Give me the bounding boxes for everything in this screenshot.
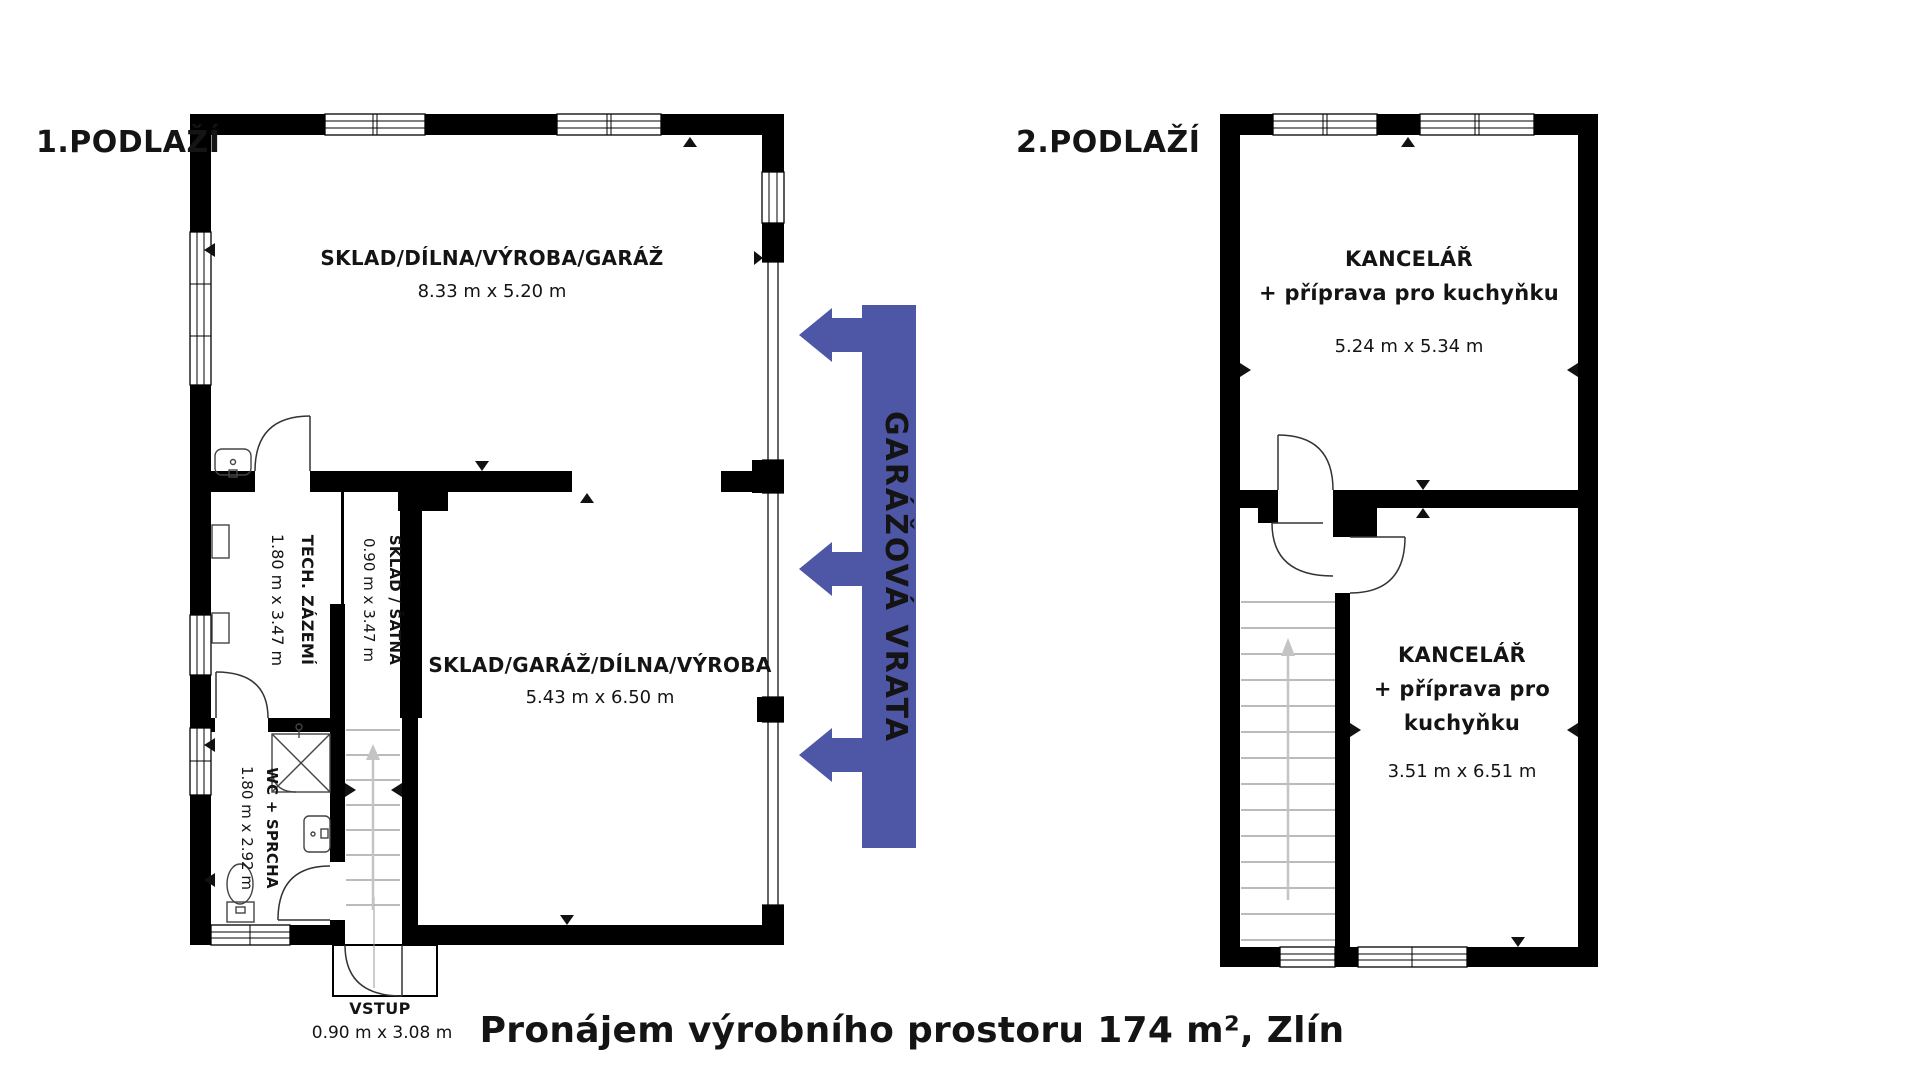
f1-window-left-3 bbox=[190, 728, 211, 795]
f1-window-top-2 bbox=[557, 114, 661, 135]
f2-left-wall bbox=[1220, 114, 1240, 967]
f2-door-office-bottom bbox=[1350, 537, 1405, 593]
f1-thin-partition bbox=[341, 492, 344, 604]
f1-window-left-1 bbox=[190, 232, 211, 385]
office-top-name: KANCELÁŘ bbox=[1345, 246, 1473, 271]
garage-door-opening-1 bbox=[762, 262, 784, 460]
f2-window-bottom-2 bbox=[1358, 947, 1467, 967]
floorplan-canvas: 1.PODLAŽÍ SKLAD/DÍLNA/VÝROBA/GARÁŽ 8.33 … bbox=[0, 0, 1920, 1080]
room-storage-top-dims: 8.33 m x 5.20 m bbox=[418, 281, 567, 302]
f2-right-wall bbox=[1578, 114, 1598, 967]
f2-wall-step bbox=[1258, 508, 1278, 523]
entrance-label: VSTUP bbox=[349, 999, 411, 1018]
room-satna-name: SKLAD / ŠATNA bbox=[386, 535, 405, 665]
f2-window-top-2 bbox=[1420, 114, 1534, 135]
room-storage-main-dims: 5.43 m x 6.50 m bbox=[526, 687, 675, 708]
tech-equipment-icon bbox=[212, 525, 229, 643]
f1-door-tech-wc bbox=[216, 672, 268, 718]
f2-window-top-1 bbox=[1273, 114, 1377, 135]
sink-wc-icon bbox=[304, 816, 330, 852]
room-wc-name: WC + SPRCHA bbox=[263, 767, 281, 888]
garage-door-banner: GARÁŽOVÁ VRATA bbox=[799, 305, 916, 848]
f2-door-opening-e bbox=[1278, 490, 1333, 508]
banner-label: GARÁŽOVÁ VRATA bbox=[878, 411, 914, 743]
room-wc-dims: 1.80 m x 2.92 m bbox=[238, 766, 256, 890]
f1-window-left-2 bbox=[190, 615, 211, 675]
banner-arrow-3 bbox=[799, 728, 864, 782]
f2-wall-block bbox=[1333, 508, 1377, 537]
f1-right-block2 bbox=[757, 697, 784, 722]
f1-stairs-right-wall bbox=[402, 718, 418, 925]
entrance-dims: 0.90 m x 3.08 m bbox=[312, 1023, 453, 1043]
banner-arrow-1 bbox=[799, 308, 864, 362]
office-bottom-dims: 3.51 m x 6.51 m bbox=[1388, 761, 1537, 782]
room-tech-dims: 1.80 m x 3.47 m bbox=[268, 534, 287, 666]
f2-wall-h bbox=[1335, 593, 1350, 947]
f1-right-t-block bbox=[752, 460, 784, 493]
office-top-line2: + příprava pro kuchyňku bbox=[1259, 281, 1559, 305]
f1-window-right bbox=[762, 172, 784, 223]
f1-staircase bbox=[346, 730, 400, 910]
room-storage-main-name: SKLAD/GARÁŽ/DÍLNA/VÝROBA bbox=[428, 653, 771, 677]
f1-entrance-door bbox=[333, 897, 437, 996]
room-storage-top-name: SKLAD/DÍLNA/VÝROBA/GARÁŽ bbox=[320, 246, 663, 270]
garage-door-opening-3 bbox=[762, 722, 784, 905]
f1-window-bottom bbox=[211, 925, 290, 945]
floorplan-page: 1.PODLAŽÍ SKLAD/DÍLNA/VÝROBA/GARÁŽ 8.33 … bbox=[0, 0, 1920, 1080]
page-title: Pronájem výrobního prostoru 174 m², Zlín bbox=[480, 1010, 1345, 1051]
f1-door-wc bbox=[278, 866, 330, 920]
f1-window-top-1 bbox=[325, 114, 425, 135]
f1-door-opening-a bbox=[255, 471, 310, 492]
floor2-plan: 2.PODLAŽÍ KANCELÁŘ + příprava pro kuchyň… bbox=[1016, 114, 1598, 967]
f2-window-bottom-1 bbox=[1280, 947, 1335, 967]
f2-staircase bbox=[1241, 602, 1335, 940]
office-top-dims: 5.24 m x 5.34 m bbox=[1335, 336, 1484, 357]
floor1-label: 1.PODLAŽÍ bbox=[36, 124, 220, 160]
floor1-plan: 1.PODLAŽÍ SKLAD/DÍLNA/VÝROBA/GARÁŽ 8.33 … bbox=[36, 114, 784, 1043]
floor2-label: 2.PODLAŽÍ bbox=[1016, 124, 1200, 160]
office-bottom-line2: + příprava pro bbox=[1374, 677, 1550, 701]
f1-door-opening-c bbox=[215, 718, 268, 732]
f1-door-storage-tech bbox=[255, 416, 310, 471]
office-bottom-line3: kuchyňku bbox=[1404, 711, 1520, 735]
office-bottom-name: KANCELÁŘ bbox=[1398, 642, 1526, 667]
f1-wc-door-opening bbox=[330, 862, 345, 920]
room-satna-dims: 0.90 m x 3.47 m bbox=[360, 538, 378, 662]
f2-door-office-top bbox=[1278, 435, 1333, 490]
room-tech-name: TECH. ZÁZEMÍ bbox=[298, 535, 317, 666]
banner-arrow-2 bbox=[799, 542, 864, 596]
f2-door-landing bbox=[1272, 523, 1333, 576]
f1-top-wall bbox=[190, 114, 784, 135]
